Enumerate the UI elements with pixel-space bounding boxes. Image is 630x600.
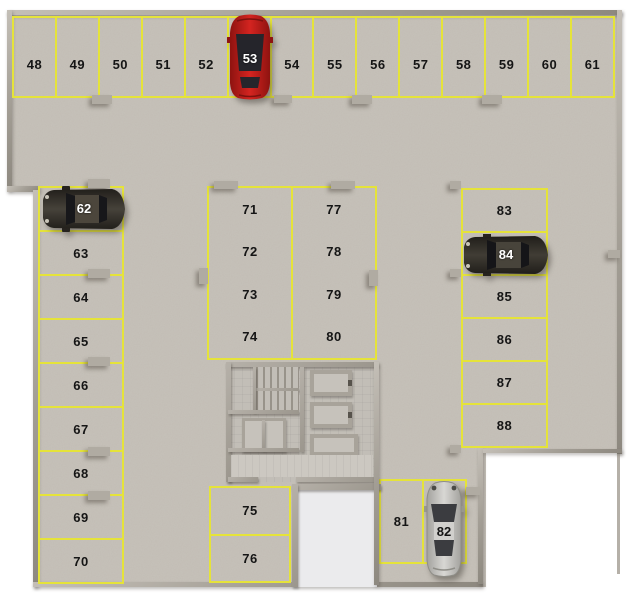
- pillar: [369, 270, 378, 286]
- space-number: 68: [73, 466, 88, 481]
- space-number: 51: [155, 57, 170, 72]
- parking-space[interactable]: 69: [40, 496, 122, 540]
- car-dark-space-62[interactable]: 62: [40, 186, 128, 232]
- stair-flight-lower: [256, 391, 299, 410]
- space-number: 54: [284, 57, 299, 72]
- background-cutout-bottom: [0, 587, 630, 600]
- parking-space[interactable]: 57: [400, 18, 443, 96]
- space-number: 76: [242, 551, 257, 566]
- space-number: 59: [499, 57, 514, 72]
- space-number: 66: [73, 378, 88, 393]
- space-number: 60: [542, 57, 557, 72]
- space-number: 67: [73, 422, 88, 437]
- parking-space[interactable]: 79: [293, 273, 375, 316]
- top-row-spaces: 48 49 50 51 52 53 54 55 56 57 58 59 60 6…: [12, 16, 615, 98]
- space-number: 63: [73, 246, 88, 261]
- space-number: 74: [242, 329, 257, 344]
- pillar: [88, 357, 110, 366]
- pillar: [199, 268, 208, 284]
- parking-space[interactable]: 75: [211, 488, 289, 536]
- space-number: 83: [497, 203, 512, 218]
- stair-bottom-wall: [228, 410, 299, 414]
- elevator-shaft: [310, 402, 352, 428]
- space-number: 52: [198, 57, 213, 72]
- parking-space[interactable]: 61: [572, 18, 613, 96]
- pillar: [88, 269, 110, 278]
- right-column-spaces: 83 84 85 86 87 88: [461, 188, 548, 448]
- ramp-floor: [296, 488, 377, 587]
- space-number: 65: [73, 334, 88, 349]
- parking-space[interactable]: 66: [40, 364, 122, 408]
- space-number: 55: [327, 57, 342, 72]
- parking-space[interactable]: 73: [209, 273, 291, 316]
- stair-flight-upper: [256, 367, 299, 388]
- vestibule-floor: [231, 455, 373, 477]
- parking-space[interactable]: 76: [211, 536, 289, 582]
- space-number: 49: [70, 57, 85, 72]
- space-number: 75: [242, 503, 257, 518]
- elevator-door-jamb: [348, 412, 352, 418]
- background-cutout-bottom-right: [486, 453, 630, 600]
- space-number: 64: [73, 290, 88, 305]
- parking-space[interactable]: 51: [143, 18, 186, 96]
- space-number: 85: [497, 289, 512, 304]
- wall-top: [7, 10, 622, 15]
- parking-space[interactable]: 85: [463, 276, 546, 319]
- parking-space[interactable]: 55: [314, 18, 357, 96]
- wall-ramp-right: [374, 362, 379, 585]
- bottom-mid-spaces: 75 76: [209, 486, 291, 583]
- parking-space[interactable]: 64: [40, 276, 122, 320]
- stairwell-elevator-core: [226, 362, 378, 482]
- space-number: 48: [27, 57, 42, 72]
- parking-space[interactable]: 77: [293, 188, 375, 231]
- car-dark-space-84[interactable]: 84: [461, 234, 551, 276]
- space-number: 87: [497, 375, 512, 390]
- space-number: 56: [370, 57, 385, 72]
- ramp-wall-left: [292, 484, 298, 587]
- parking-space[interactable]: 67: [40, 408, 122, 452]
- space-number: 88: [497, 418, 512, 433]
- parking-space[interactable]: 52: [186, 18, 229, 96]
- car-space-number: 82: [424, 524, 464, 539]
- elevator-shaft: [310, 434, 358, 456]
- pillar: [608, 250, 620, 258]
- wall-right-upper: [617, 10, 622, 454]
- parking-space[interactable]: 81: [381, 481, 424, 562]
- space-number: 71: [242, 202, 257, 217]
- background-cutout-left: [0, 192, 37, 600]
- pillar: [88, 491, 110, 500]
- car-space-number: 84: [461, 247, 551, 262]
- parking-space[interactable]: 54: [272, 18, 315, 96]
- middle-left-column: 71 72 73 74: [209, 188, 293, 358]
- parking-space[interactable]: 86: [463, 319, 546, 362]
- parking-space[interactable]: 50: [100, 18, 143, 96]
- parking-space[interactable]: 48: [14, 18, 57, 96]
- core-wall-bottom-right: [296, 477, 378, 482]
- parking-space[interactable]: 74: [209, 316, 291, 359]
- car-silver-space-82[interactable]: 82: [424, 480, 464, 578]
- space-number: 72: [242, 244, 257, 259]
- space-number: 61: [585, 57, 600, 72]
- pillar: [352, 95, 372, 104]
- parking-space[interactable]: 56: [357, 18, 400, 96]
- space-number: 81: [394, 514, 409, 529]
- core-section-wall: [228, 448, 299, 452]
- middle-right-column: 77 78 79 80: [293, 188, 375, 358]
- car-space-number: 53: [227, 51, 273, 66]
- space-number: 58: [456, 57, 471, 72]
- space-number: 86: [497, 332, 512, 347]
- pillar: [88, 447, 110, 456]
- elevator-shaft: [310, 370, 352, 396]
- space-number: 77: [326, 202, 341, 217]
- parking-space[interactable]: 71: [209, 188, 291, 231]
- elevator-door-jamb: [348, 380, 352, 386]
- parking-space[interactable]: 58: [443, 18, 486, 96]
- car-red-space-53[interactable]: 53: [227, 13, 273, 101]
- core-wall-bottom-left: [228, 477, 258, 482]
- ramp-wall-top: [292, 484, 381, 490]
- space-number: 78: [326, 244, 341, 259]
- parking-space[interactable]: 59: [486, 18, 529, 96]
- pillar: [331, 181, 355, 189]
- pillar: [450, 445, 461, 453]
- ramp-opening: [292, 484, 381, 587]
- core-central-wall: [300, 367, 304, 452]
- parking-space[interactable]: 70: [40, 540, 122, 582]
- parking-space[interactable]: 88: [463, 405, 546, 446]
- space-number: 79: [326, 287, 341, 302]
- space-number: 73: [242, 287, 257, 302]
- wall-step-bottom-right-horizontal: [483, 449, 622, 453]
- parking-space[interactable]: 72: [209, 231, 291, 274]
- pillar: [274, 95, 292, 103]
- stair-landing-wall: [253, 367, 256, 412]
- pillar: [214, 181, 238, 189]
- space-number: 70: [73, 554, 88, 569]
- space-number: 50: [113, 57, 128, 72]
- space-number: 80: [326, 329, 341, 344]
- parking-space[interactable]: 83: [463, 190, 546, 233]
- parking-space[interactable]: 87: [463, 362, 546, 405]
- parking-floor-plan: 48 49 50 51 52 53 54 55 56 57 58 59 60 6…: [0, 0, 630, 600]
- space-number: 57: [413, 57, 428, 72]
- pillar: [466, 487, 480, 495]
- wall-step-bottom-right-vertical: [478, 448, 483, 584]
- parking-space[interactable]: 49: [57, 18, 100, 96]
- middle-block-spaces: 71 72 73 74 77 78 79 80: [207, 186, 377, 360]
- pillar: [450, 181, 461, 189]
- parking-space[interactable]: 78: [293, 231, 375, 274]
- left-column-spaces: 62 63 64 65 66 67 68 69 70: [38, 186, 124, 584]
- parking-space[interactable]: 60: [529, 18, 572, 96]
- parking-space[interactable]: 80: [293, 316, 375, 359]
- core-room-divider: [262, 420, 265, 450]
- car-space-number: 62: [40, 201, 128, 216]
- pillar: [482, 95, 502, 104]
- pillar: [450, 269, 461, 277]
- pillar: [92, 95, 112, 104]
- space-number: 69: [73, 510, 88, 525]
- parking-space[interactable]: 68: [40, 452, 122, 496]
- wall-right-lower: [617, 454, 620, 574]
